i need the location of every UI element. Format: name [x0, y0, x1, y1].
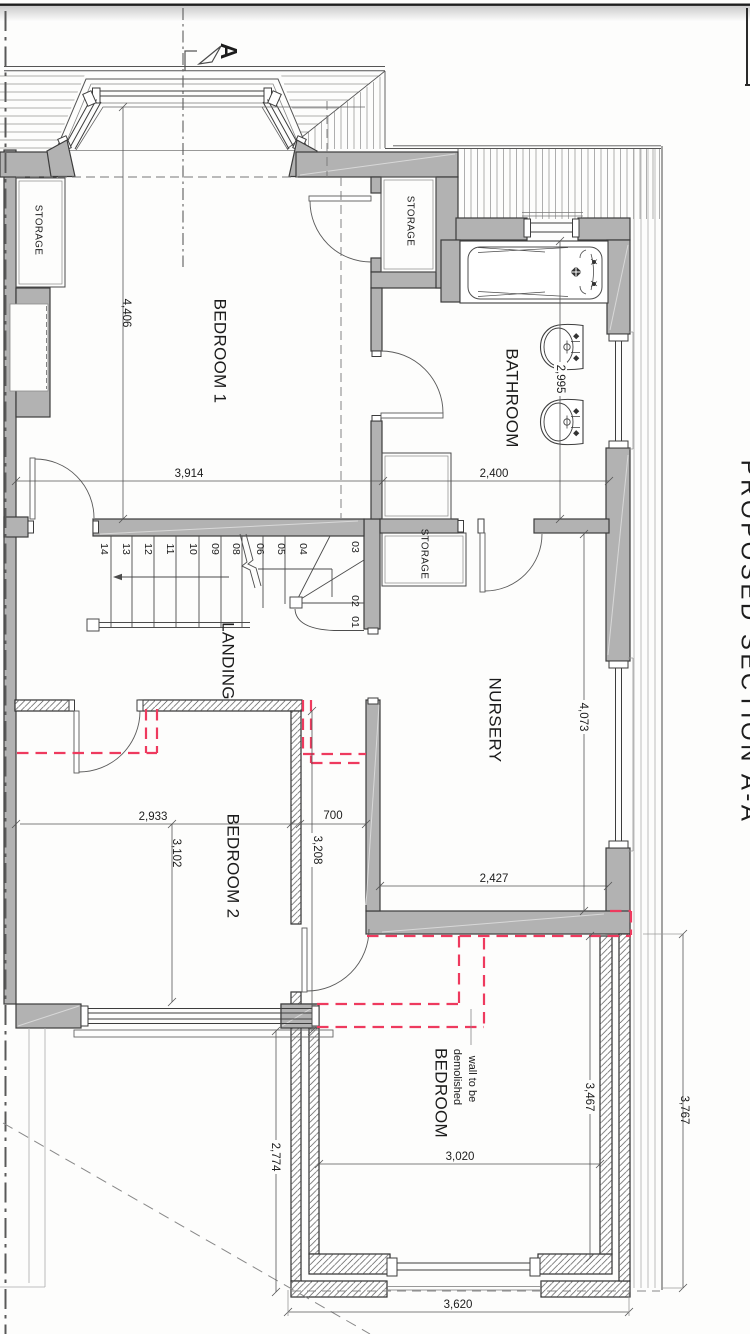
svg-text:STORAGE: STORAGE	[404, 196, 415, 247]
svg-text:09: 09	[209, 543, 221, 555]
svg-text:12: 12	[142, 543, 154, 555]
svg-text:10: 10	[187, 543, 199, 555]
svg-text:700: 700	[323, 810, 342, 822]
svg-text:14: 14	[98, 543, 110, 555]
svg-text:STORAGE: STORAGE	[32, 205, 43, 256]
svg-text:01: 01	[349, 616, 361, 628]
svg-text:2,774: 2,774	[269, 1143, 281, 1172]
svg-text:04: 04	[297, 543, 309, 555]
svg-text:4,406: 4,406	[120, 299, 132, 328]
svg-text:05: 05	[275, 543, 287, 555]
svg-text:NURSERY: NURSERY	[486, 678, 505, 763]
svg-text:PROPOSED SECTION A-A: PROPOSED SECTION A-A	[736, 460, 750, 825]
svg-text:2,427: 2,427	[480, 873, 509, 885]
svg-text:BEDROOM: BEDROOM	[432, 1048, 451, 1138]
svg-text:3,467: 3,467	[583, 1083, 595, 1112]
svg-text:BATHROOM: BATHROOM	[503, 348, 522, 447]
svg-text:A: A	[216, 43, 242, 60]
svg-text:BEDROOM 2: BEDROOM 2	[224, 814, 243, 919]
svg-text:BEDROOM 1: BEDROOM 1	[211, 299, 230, 404]
svg-text:08: 08	[230, 543, 242, 555]
svg-text:2,400: 2,400	[480, 468, 509, 480]
svg-text:wall to be: wall to be	[466, 1055, 478, 1102]
svg-text:3,620: 3,620	[444, 1299, 473, 1311]
svg-text:LANDING: LANDING	[219, 622, 238, 700]
svg-text:3,102: 3,102	[170, 839, 182, 868]
svg-text:3,767: 3,767	[678, 1096, 690, 1125]
svg-text:11: 11	[164, 544, 176, 555]
svg-text:2,933: 2,933	[139, 811, 168, 823]
svg-text:demolished: demolished	[451, 1049, 463, 1105]
svg-text:STORAGE: STORAGE	[418, 529, 429, 580]
svg-text:3,914: 3,914	[175, 468, 204, 480]
svg-text:06: 06	[254, 543, 266, 555]
svg-text:4,073: 4,073	[577, 703, 589, 732]
svg-text:3,208: 3,208	[311, 836, 323, 865]
svg-text:2,995: 2,995	[554, 365, 566, 394]
svg-text:03: 03	[349, 541, 361, 553]
svg-text:3,020: 3,020	[446, 1151, 475, 1163]
svg-text:13: 13	[120, 543, 132, 555]
svg-text:02: 02	[349, 595, 361, 607]
